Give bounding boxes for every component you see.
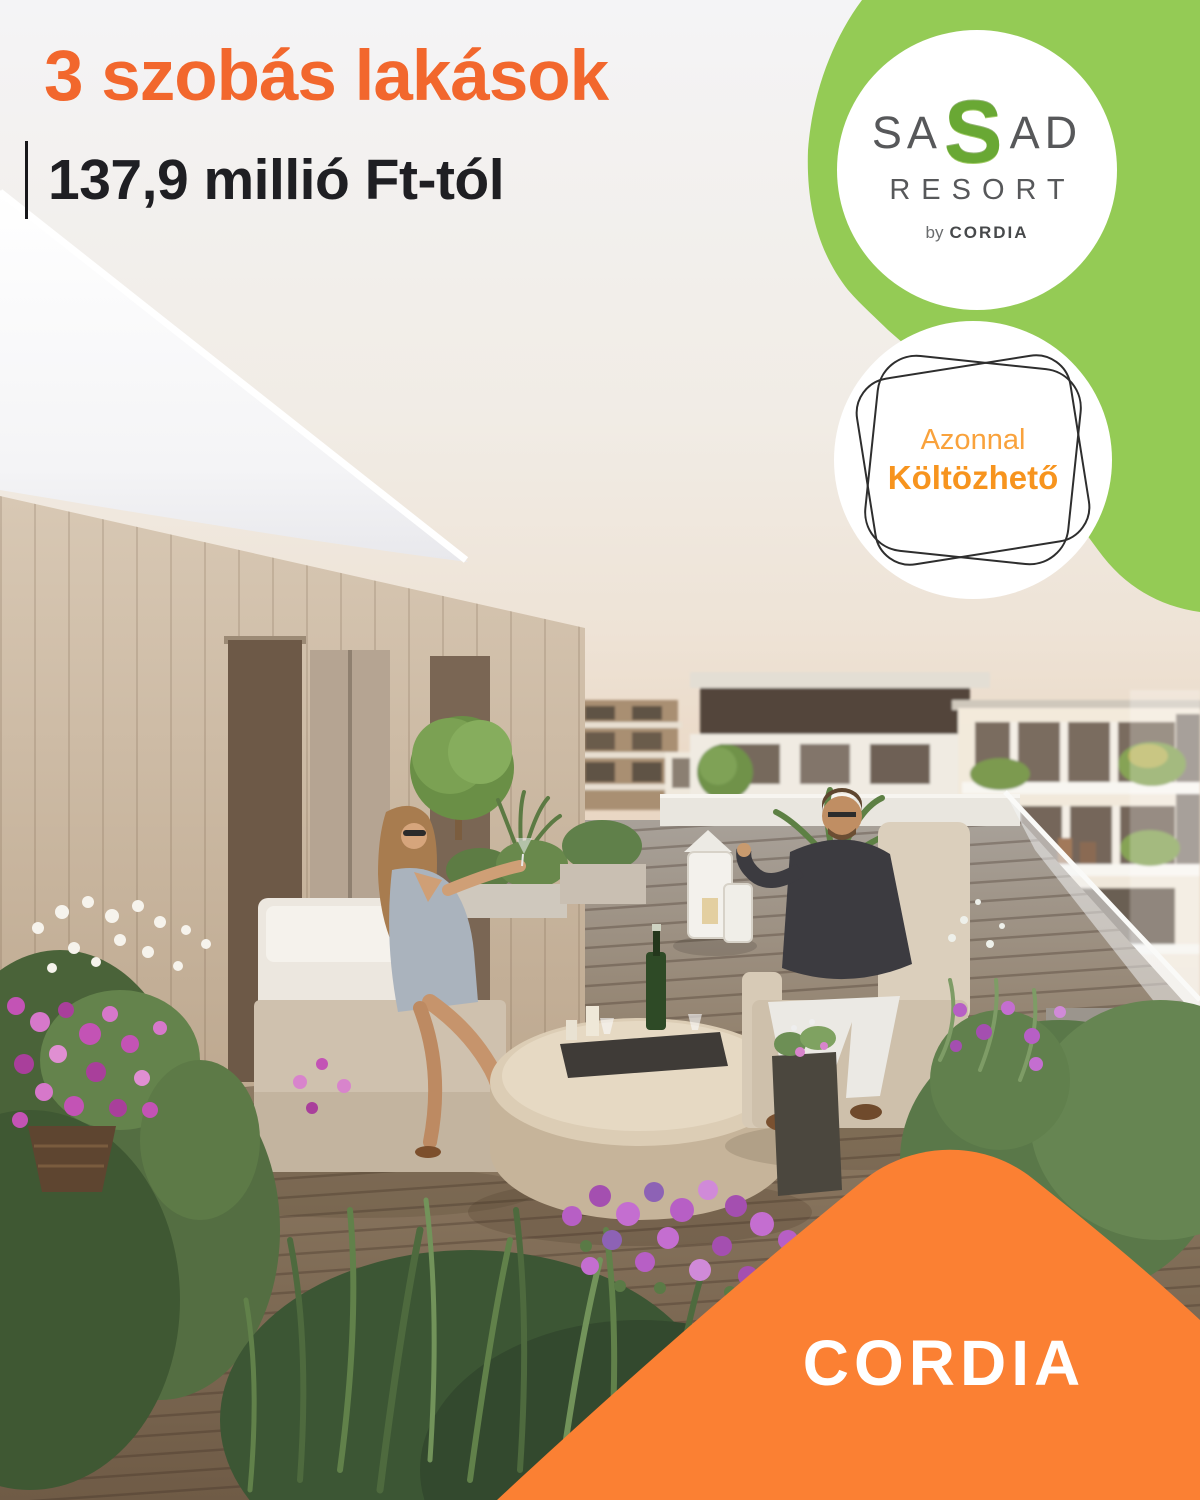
ad-banner: SASAD RESORT byCORDIA Azonnal Költözhető… — [0, 0, 1200, 1500]
cordia-logo: CORDIA — [744, 1326, 1144, 1400]
orange-corner-shape — [0, 0, 1200, 1500]
